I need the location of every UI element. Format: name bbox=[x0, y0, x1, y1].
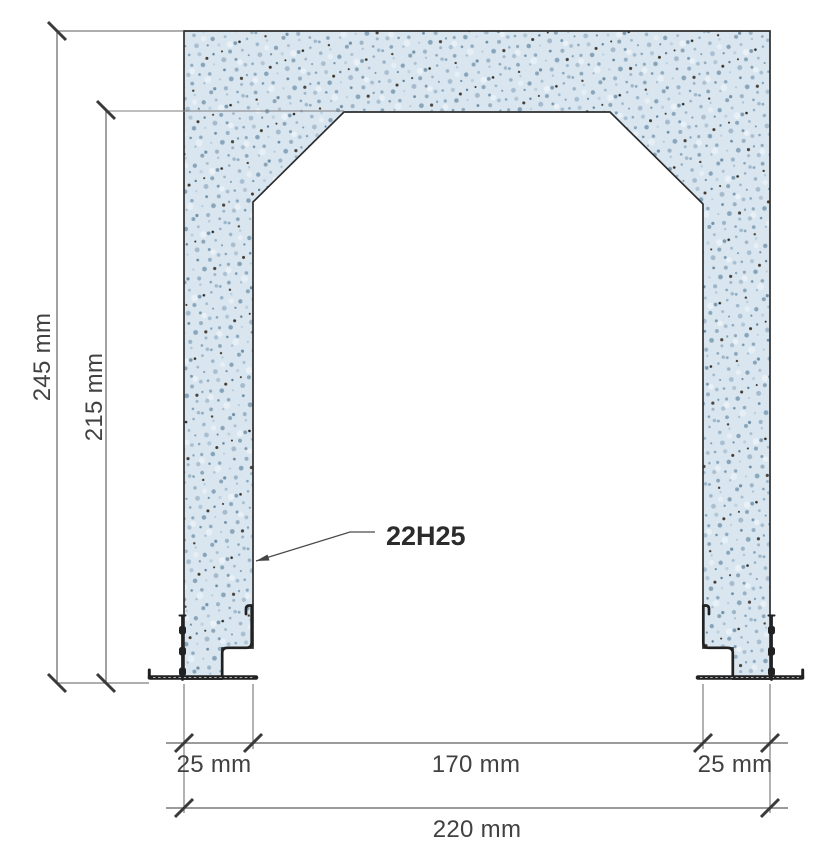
labels: 245 mm 215 mm 25 mm 170 mm 25 mm 220 mm … bbox=[29, 313, 772, 843]
label-opening-width: 170 mm bbox=[432, 751, 521, 778]
label-wall-right: 25 mm bbox=[698, 751, 773, 778]
drawing-canvas: 245 mm 215 mm 25 mm 170 mm 25 mm 220 mm … bbox=[0, 0, 814, 847]
concrete-section bbox=[184, 31, 770, 679]
arrowhead-icon bbox=[256, 555, 270, 562]
label-total-width: 220 mm bbox=[433, 816, 522, 843]
label-wall-left: 25 mm bbox=[177, 751, 252, 778]
anchor-bar-left-rib bbox=[179, 626, 186, 635]
label-total-height: 245 mm bbox=[29, 313, 56, 402]
anchor-bar-right-rib bbox=[768, 668, 775, 677]
leader-line bbox=[256, 532, 375, 561]
label-rebar: 22H25 bbox=[386, 521, 466, 551]
anchor-bar-left-rib bbox=[179, 668, 186, 677]
anchor-bar-left-rib bbox=[179, 647, 186, 656]
anchor-bar-right-rib bbox=[768, 647, 775, 656]
cross-section-drawing: 245 mm 215 mm 25 mm 170 mm 25 mm 220 mm … bbox=[0, 0, 814, 847]
rebar-callout bbox=[256, 532, 375, 561]
anchor-bar-right-rib bbox=[768, 626, 775, 635]
label-inner-height: 215 mm bbox=[81, 353, 108, 442]
